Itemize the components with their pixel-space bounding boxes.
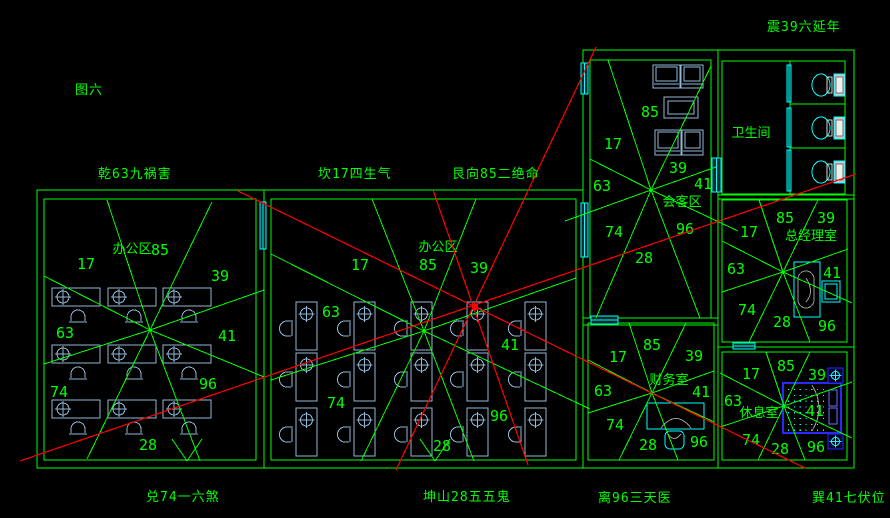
room-label-gm-office: 总经理室 bbox=[785, 228, 837, 244]
room-number: 85 bbox=[419, 256, 437, 274]
bed-mattress-dot bbox=[800, 406, 801, 407]
floorplan-drawing: 1785396341749628办公区1785396341749628办公区85… bbox=[0, 0, 890, 518]
bed-mattress-dot bbox=[788, 412, 789, 413]
compass-label-dui: 兑74一六煞 bbox=[146, 486, 220, 505]
cad-floorplan-canvas: 1785396341749628办公区1785396341749628办公区85… bbox=[0, 0, 890, 518]
room-number: 28 bbox=[773, 313, 791, 331]
room-number: 41 bbox=[806, 402, 824, 420]
compass-label-qian: 乾63九祸害 bbox=[98, 163, 172, 182]
room-number: 41 bbox=[692, 383, 710, 401]
room-number: 74 bbox=[606, 416, 624, 434]
room-number: 39 bbox=[211, 267, 229, 285]
room-label-finance-office: 财务室 bbox=[649, 372, 688, 388]
bed-mattress-dot bbox=[805, 389, 806, 390]
toilet-tank-inner bbox=[836, 120, 843, 136]
bed-mattress-dot bbox=[800, 389, 801, 390]
bed-mattress-dot bbox=[805, 424, 806, 425]
bed-mattress-dot bbox=[794, 418, 795, 419]
compass-label-zhen: 震39六延年 bbox=[767, 16, 841, 35]
bed-mattress-dot bbox=[805, 430, 806, 431]
room-number: 39 bbox=[669, 159, 687, 177]
bed-mattress-dot bbox=[823, 395, 824, 396]
room-number: 41 bbox=[218, 327, 236, 345]
room-number: 41 bbox=[501, 336, 519, 354]
star-center-rest-room bbox=[783, 405, 786, 408]
room-number: 96 bbox=[199, 375, 217, 393]
toilet-tank-inner bbox=[836, 164, 843, 180]
bed-mattress-dot bbox=[817, 389, 818, 390]
analysis-red-center bbox=[472, 304, 478, 310]
room-number: 74 bbox=[605, 223, 623, 241]
star-center-office-left bbox=[149, 329, 152, 332]
bed-mattress-dot bbox=[788, 401, 789, 402]
star-center-meeting-area bbox=[650, 189, 653, 192]
room-number: 85 bbox=[151, 241, 169, 259]
bed-mattress-dot bbox=[788, 389, 789, 390]
room-number: 96 bbox=[490, 407, 508, 425]
room-number: 41 bbox=[694, 175, 712, 193]
compass-label-xun: 巽41七伏位 bbox=[812, 487, 886, 506]
bed-mattress-dot bbox=[794, 395, 795, 396]
room-number: 96 bbox=[818, 317, 836, 335]
room-number: 85 bbox=[777, 357, 795, 375]
bed-mattress-dot bbox=[788, 430, 789, 431]
room-number: 39 bbox=[817, 209, 835, 227]
room-number: 41 bbox=[823, 264, 841, 282]
room-number: 17 bbox=[609, 348, 627, 366]
room-number: 17 bbox=[77, 255, 95, 273]
room-number: 17 bbox=[740, 223, 758, 241]
bed-mattress-dot bbox=[805, 395, 806, 396]
room-number: 63 bbox=[593, 177, 611, 195]
bed-mattress-dot bbox=[788, 424, 789, 425]
room-number: 85 bbox=[641, 103, 659, 121]
room-number: 28 bbox=[639, 436, 657, 454]
room-number: 74 bbox=[327, 394, 345, 412]
room-number: 28 bbox=[635, 249, 653, 267]
bed-mattress-dot bbox=[800, 395, 801, 396]
room-number: 17 bbox=[742, 365, 760, 383]
room-number: 85 bbox=[776, 209, 794, 227]
room-number: 96 bbox=[690, 433, 708, 451]
room-number: 39 bbox=[685, 347, 703, 365]
room-number: 17 bbox=[604, 135, 622, 153]
compass-label-gen: 艮向85二绝命 bbox=[452, 163, 540, 182]
bed-mattress-dot bbox=[811, 389, 812, 390]
bed-mattress-dot bbox=[800, 424, 801, 425]
bed-mattress-dot bbox=[817, 430, 818, 431]
room-number: 96 bbox=[807, 438, 825, 456]
room-number: 74 bbox=[50, 383, 68, 401]
star-center-gm-office bbox=[782, 271, 785, 274]
room-number: 17 bbox=[351, 256, 369, 274]
room-number: 63 bbox=[56, 324, 74, 342]
room-number: 28 bbox=[433, 437, 451, 455]
room-number: 39 bbox=[808, 366, 826, 384]
room-number: 28 bbox=[139, 436, 157, 454]
room-number: 74 bbox=[742, 431, 760, 449]
room-label-rest-room: 休息室 bbox=[739, 405, 778, 421]
room-number: 74 bbox=[738, 301, 756, 319]
bed-mattress-dot bbox=[823, 430, 824, 431]
bed-mattress-dot bbox=[823, 389, 824, 390]
room-label-bathroom: 卫生间 bbox=[731, 126, 770, 141]
compass-label-li: 离96三天医 bbox=[598, 487, 672, 506]
star-center-office-middle bbox=[423, 330, 426, 333]
bed-mattress-dot bbox=[800, 430, 801, 431]
room-number: 63 bbox=[727, 260, 745, 278]
compass-label-kun: 坤山28五五鬼 bbox=[423, 486, 511, 505]
compass-label-kan: 坎17四生气 bbox=[318, 163, 392, 182]
bed-mattress-dot bbox=[794, 401, 795, 402]
bed-mattress-dot bbox=[794, 424, 795, 425]
room-label-meeting-area: 会客区 bbox=[662, 194, 701, 210]
bed-mattress-dot bbox=[800, 418, 801, 419]
bed-mattress-dot bbox=[794, 389, 795, 390]
room-number: 85 bbox=[643, 336, 661, 354]
room-label-office-left: 办公区 bbox=[112, 242, 151, 257]
room-number: 63 bbox=[594, 382, 612, 400]
room-number: 39 bbox=[470, 259, 488, 277]
toilet-tank-inner bbox=[836, 77, 843, 93]
bed-mattress-dot bbox=[817, 424, 818, 425]
room-number: 63 bbox=[322, 303, 340, 321]
bed-mattress-dot bbox=[794, 406, 795, 407]
bed-mattress-dot bbox=[794, 412, 795, 413]
figure-title: 图六 bbox=[75, 79, 103, 98]
bed-mattress-dot bbox=[811, 424, 812, 425]
